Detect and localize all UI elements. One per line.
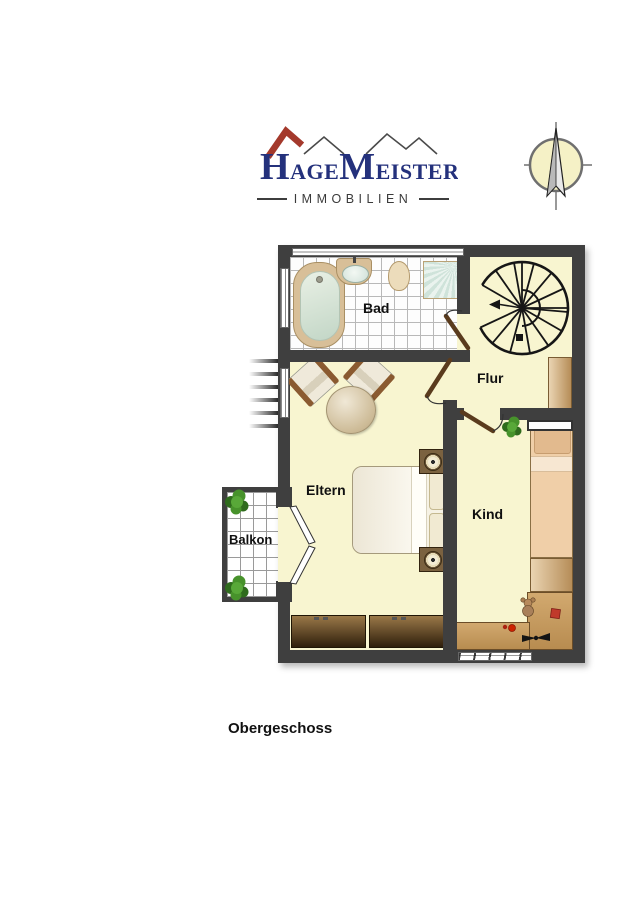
dresser <box>369 615 445 648</box>
window <box>280 368 289 418</box>
logo-subtitle-row: IMMOBILIEN <box>248 192 458 206</box>
logo-wordmark: HAGEMEISTER <box>248 124 458 186</box>
nightstand <box>419 449 445 474</box>
roof-hatch-mark <box>249 424 278 428</box>
wall-segment <box>276 581 292 602</box>
bathtub-drain <box>316 276 323 283</box>
divider <box>257 198 287 200</box>
room-label-kind: Kind <box>472 506 503 522</box>
room-label-bad: Bad <box>363 300 389 316</box>
round-table <box>326 386 376 434</box>
hall-cabinet <box>548 357 572 409</box>
washbasin-bowl <box>342 265 369 283</box>
lamp-icon <box>424 551 442 569</box>
floorplan: Bad Flur Eltern Kind <box>278 245 585 663</box>
bed-blanket-fold <box>411 467 427 553</box>
dresser <box>291 615 366 648</box>
wall-segment <box>500 408 572 420</box>
room-label-eltern: Eltern <box>306 482 346 498</box>
room-label-balkon: Balkon <box>229 532 272 547</box>
window <box>292 248 464 256</box>
roof-hatch-mark <box>249 385 278 389</box>
toilet <box>388 261 410 291</box>
washbasin-tap <box>353 256 356 263</box>
roofline-icon <box>366 134 437 154</box>
wall-segment <box>457 257 470 314</box>
balcony-door-opening <box>278 507 291 582</box>
single-bed <box>530 422 573 558</box>
roofline-icon <box>304 137 344 154</box>
floor-caption: Obergeschoss <box>228 720 332 737</box>
window <box>280 268 289 328</box>
floorplan-page: HAGEMEISTER IMMOBILIEN Balkon <box>0 0 636 900</box>
wall-segment <box>443 400 457 650</box>
bed-blanket-fold <box>531 456 572 472</box>
lamp-icon <box>424 453 442 471</box>
roof-hatch-mark <box>249 372 278 376</box>
divider <box>419 198 449 200</box>
logo-subtitle: IMMOBILIEN <box>294 192 413 206</box>
roof-hatch-mark <box>249 411 278 415</box>
room-label-flur: Flur <box>477 370 503 386</box>
shower <box>423 261 459 299</box>
roof-hatch-mark <box>249 398 278 402</box>
compass-north-icon <box>522 120 594 212</box>
washbasin <box>336 258 372 285</box>
wall-shelf <box>527 420 573 431</box>
roof-hatch-mark <box>249 359 278 363</box>
double-bed <box>352 466 445 554</box>
wall-segment <box>457 408 464 420</box>
bed-blanket <box>353 467 411 553</box>
window <box>458 652 532 661</box>
logo-text: HAGEMEISTER <box>260 146 458 186</box>
nightstand <box>419 547 445 572</box>
pillow <box>534 427 571 454</box>
desk <box>527 592 573 650</box>
desk <box>455 622 530 650</box>
wall-segment <box>290 350 470 362</box>
brand-logo: HAGEMEISTER IMMOBILIEN <box>248 124 458 219</box>
wall-segment <box>276 487 292 508</box>
wardrobe <box>530 558 573 592</box>
